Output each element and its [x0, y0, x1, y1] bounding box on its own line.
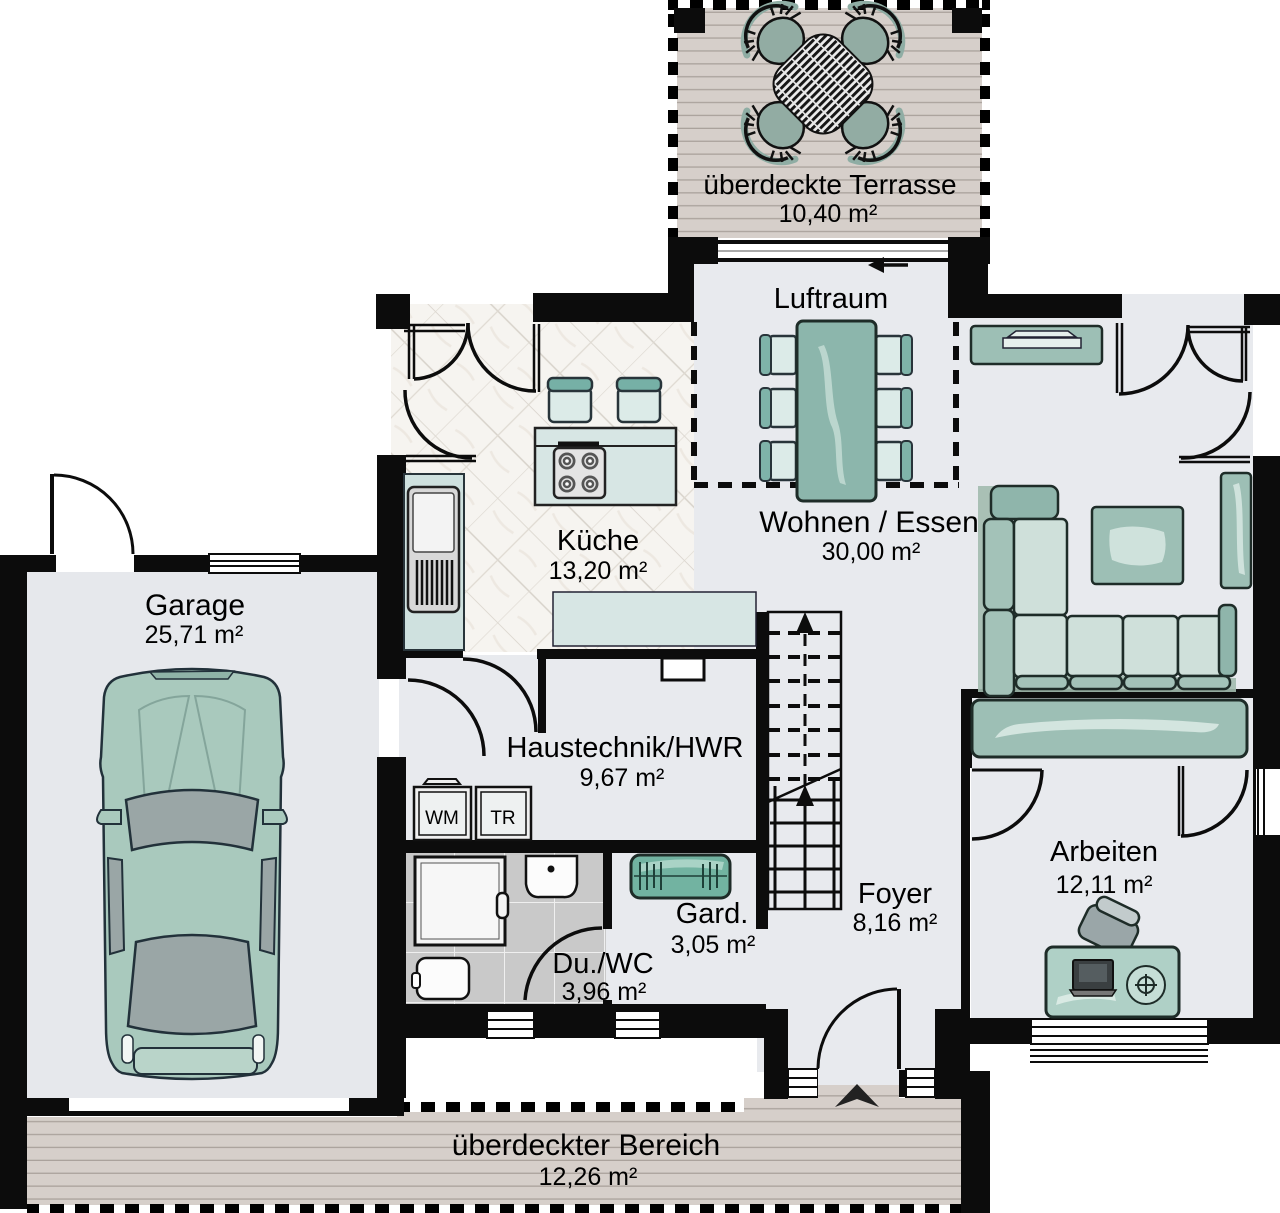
svg-text:Luftraum: Luftraum: [774, 283, 888, 315]
svg-text:10,40 m²: 10,40 m²: [779, 200, 878, 228]
svg-text:25,71 m²: 25,71 m²: [145, 621, 244, 649]
svg-text:überdeckte Terrasse: überdeckte Terrasse: [703, 169, 956, 200]
svg-text:TR: TR: [490, 808, 515, 829]
svg-text:Haustechnik/HWR: Haustechnik/HWR: [507, 732, 744, 764]
svg-text:Foyer: Foyer: [858, 878, 932, 910]
svg-text:WM: WM: [425, 808, 459, 829]
svg-text:Du./WC: Du./WC: [552, 948, 654, 980]
svg-text:3,05 m²: 3,05 m²: [671, 931, 756, 959]
svg-text:Garage: Garage: [145, 589, 245, 622]
svg-text:3,96 m²: 3,96 m²: [562, 978, 647, 1006]
svg-text:13,20 m²: 13,20 m²: [549, 557, 648, 585]
svg-text:Wohnen / Essen: Wohnen / Essen: [759, 506, 979, 539]
svg-text:Gard.: Gard.: [676, 898, 749, 930]
svg-text:30,00 m²: 30,00 m²: [822, 538, 921, 566]
svg-text:Arbeiten: Arbeiten: [1050, 836, 1158, 868]
svg-text:9,67 m²: 9,67 m²: [580, 764, 665, 792]
svg-text:12,26 m²: 12,26 m²: [539, 1163, 638, 1191]
svg-text:Küche: Küche: [557, 525, 639, 557]
svg-text:8,16 m²: 8,16 m²: [853, 909, 938, 937]
svg-text:überdeckter Bereich: überdeckter Bereich: [452, 1129, 720, 1162]
svg-text:12,11 m²: 12,11 m²: [1056, 871, 1153, 899]
